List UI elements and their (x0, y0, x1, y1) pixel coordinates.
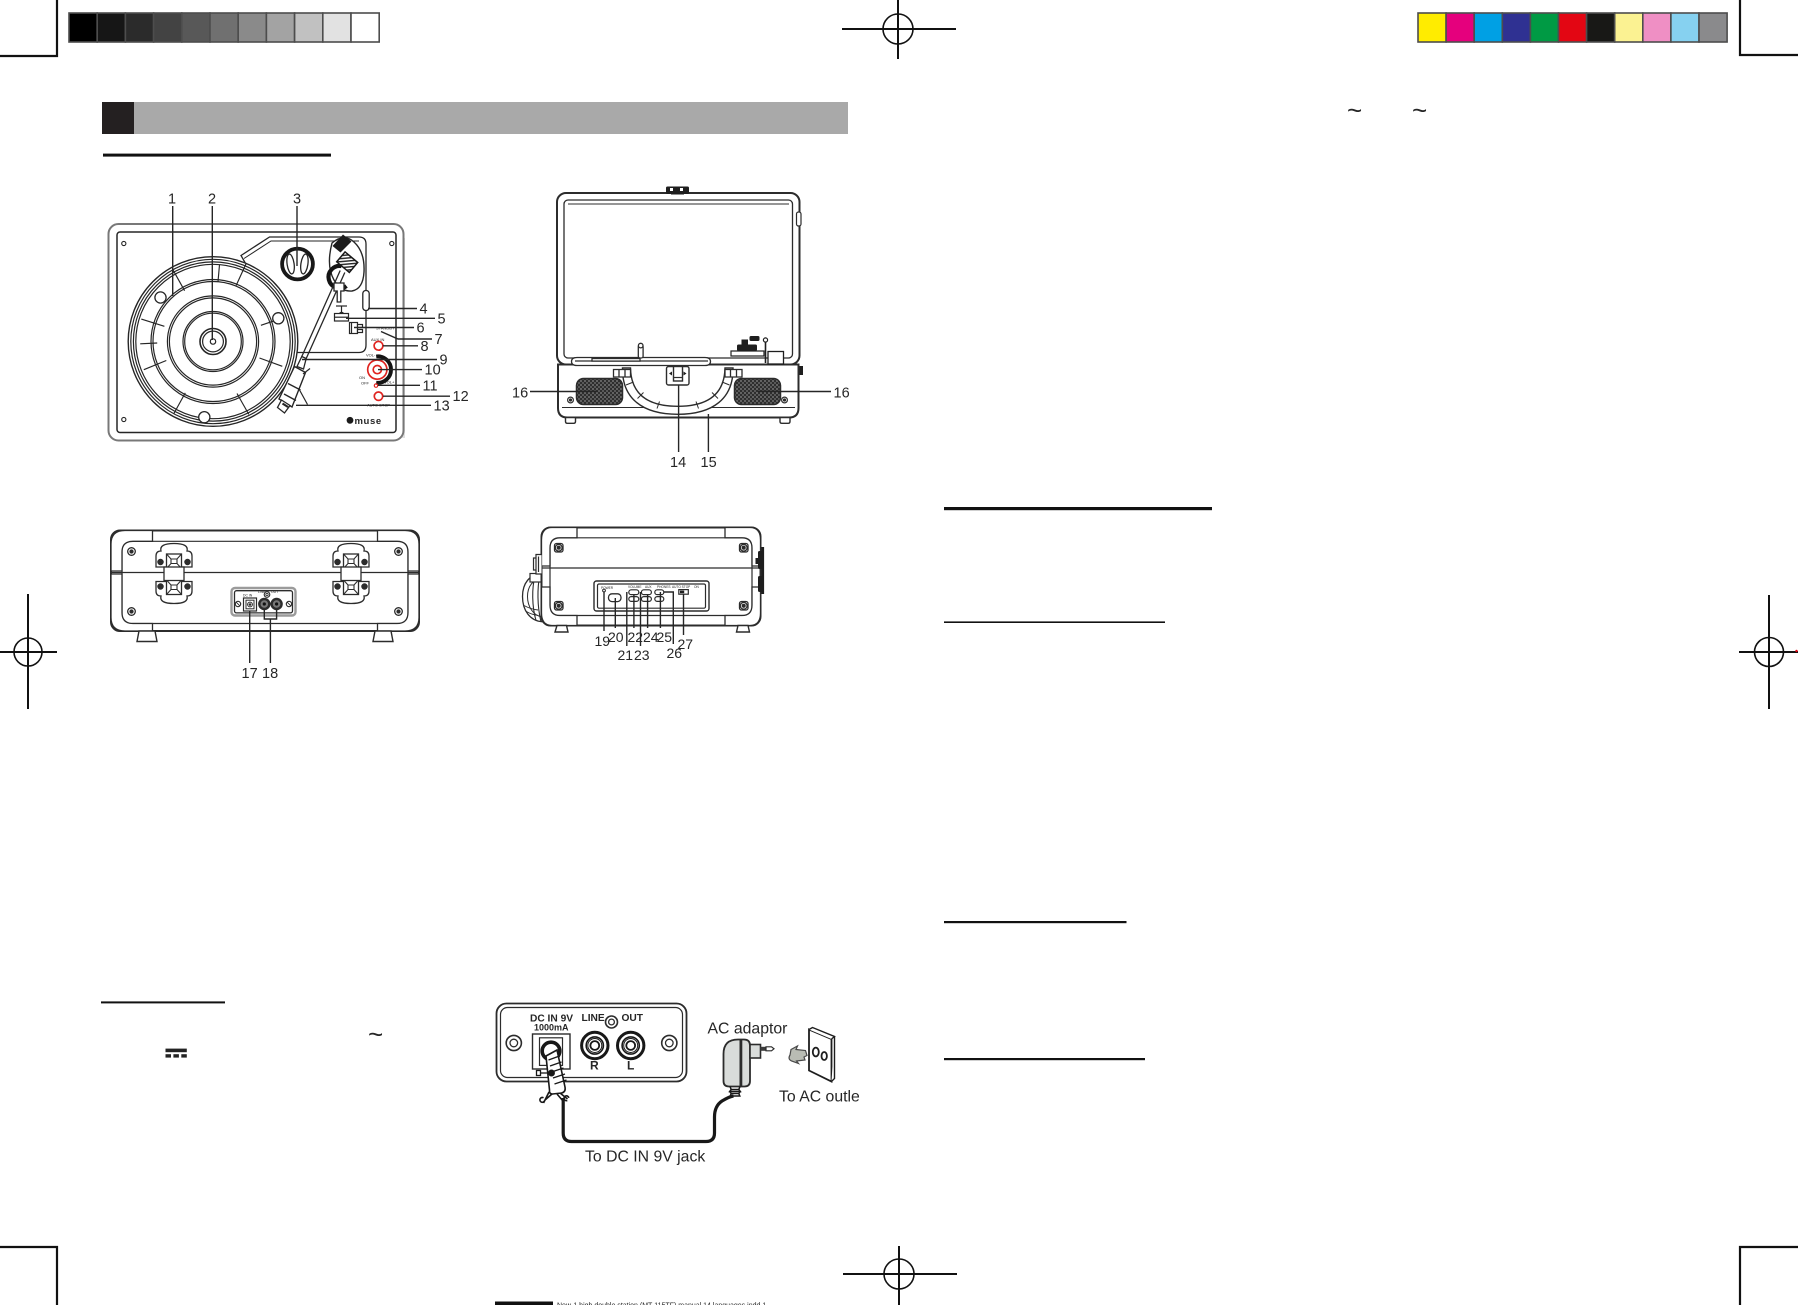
svg-text:16: 16 (512, 386, 528, 402)
svg-text:20: 20 (608, 629, 624, 645)
svg-text:OUT: OUT (271, 590, 278, 594)
svg-text:12: 12 (453, 389, 469, 405)
svg-text:15: 15 (701, 455, 717, 471)
svg-text:21: 21 (618, 647, 634, 663)
svg-text:27: 27 (678, 636, 694, 652)
svg-text:3: 3 (293, 192, 301, 208)
svg-text:To AC outle: To AC outle (779, 1089, 860, 1106)
svg-text:OUT: OUT (622, 1013, 644, 1024)
svg-text:muse: muse (355, 416, 382, 427)
svg-text:8: 8 (421, 339, 429, 355)
svg-text:13: 13 (434, 398, 450, 414)
svg-text:9: 9 (440, 353, 448, 369)
svg-text:25: 25 (657, 629, 673, 645)
svg-text:5: 5 (438, 311, 446, 327)
svg-text:R: R (590, 1059, 599, 1073)
svg-text:VOL+: VOL+ (384, 380, 395, 385)
svg-text:AUTO STOP: AUTO STOP (672, 585, 690, 589)
svg-text:1000mA: 1000mA (534, 1023, 569, 1033)
svg-text:DC IN: DC IN (243, 594, 253, 598)
svg-text:7: 7 (435, 332, 443, 348)
svg-text:ON: ON (359, 375, 365, 380)
svg-text:~: ~ (1347, 95, 1362, 125)
svg-text:2: 2 (208, 192, 216, 208)
svg-text:1: 1 (168, 192, 176, 208)
svg-text:PHONES: PHONES (657, 585, 670, 589)
svg-text:~: ~ (368, 1019, 383, 1049)
svg-text:L: L (627, 1059, 634, 1073)
svg-text:18: 18 (262, 666, 278, 682)
svg-text:10: 10 (425, 363, 441, 379)
svg-text:To DC IN 9V jack: To DC IN 9V jack (585, 1149, 705, 1166)
svg-text:AUX: AUX (645, 585, 652, 589)
svg-text:6: 6 (417, 321, 425, 337)
svg-text:LINE: LINE (258, 590, 266, 594)
svg-text:VOL-: VOL- (366, 353, 376, 358)
svg-text:17: 17 (242, 666, 258, 682)
svg-text:AC adaptor: AC adaptor (708, 1021, 788, 1038)
svg-text:16: 16 (834, 386, 850, 402)
svg-text:OFF: OFF (361, 381, 370, 386)
svg-text:4: 4 (420, 302, 428, 318)
svg-text:14: 14 (670, 455, 686, 471)
svg-text:~: ~ (1412, 95, 1427, 125)
svg-text:ON: ON (694, 585, 699, 589)
svg-text:11: 11 (423, 378, 438, 394)
svg-text:VOLUME: VOLUME (628, 585, 641, 589)
svg-text:23: 23 (634, 647, 650, 663)
svg-text:LINE: LINE (582, 1013, 605, 1024)
